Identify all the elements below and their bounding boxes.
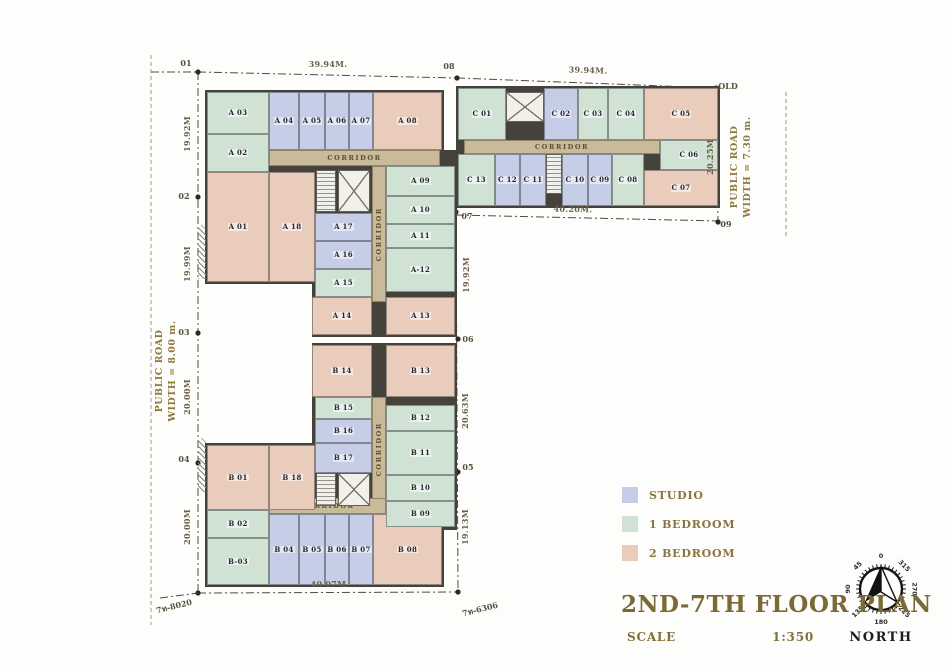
survey-point-label-p05: 05: [462, 463, 473, 471]
legend-item-bed2: 2 BEDROOM: [622, 545, 735, 561]
dimension-label-dim-left-4: 20.00M: [183, 509, 191, 545]
road-label-road-right: PUBLIC ROADWIDTH = 7.30 m.: [729, 116, 755, 217]
road-label-road-left: PUBLIC ROADWIDTH = 8.00 m.: [154, 320, 180, 421]
dimension-label-dim-mid-2: 20.63M: [461, 393, 469, 429]
road-label-line1: PUBLIC ROAD: [729, 116, 742, 217]
dimension-label-dim-top-a: 39.94M.: [309, 60, 348, 68]
survey-point-label-p06: 06: [462, 335, 473, 343]
survey-point-label-pbm: 7ท-6306: [461, 601, 498, 618]
survey-point-label-p09: 09: [720, 220, 731, 228]
dimension-label-dim-left-3: 20.00M: [183, 379, 191, 415]
floor-plan-canvas: CORRIDORCORRIDORCORRIDORCORRIDORCORRIDOR…: [0, 0, 946, 666]
legend-label: 2 BEDROOM: [649, 548, 735, 559]
dimension-label-dim-top-c: 39.94M.: [568, 65, 607, 74]
compass-degree-315: 315: [897, 559, 911, 573]
compass-degree-0: 0: [879, 553, 884, 560]
legend-swatch-bed1: [622, 516, 638, 532]
dimension-label-dim-bot-c: 40.20M.: [554, 205, 593, 214]
road-label-line2: WIDTH = 7.30 m.: [742, 116, 755, 217]
survey-point-label-p07: 07: [461, 212, 472, 220]
annotation-layer: 39.94M.39.94M.19.92M19.99M20.00M20.00M19…: [0, 0, 946, 666]
scale-value: 1:350: [772, 631, 814, 643]
title-block: 2ND-7TH FLOOR PLAN SCALE 1:350: [621, 592, 821, 643]
dimension-label-dim-left-1: 19.92M: [183, 116, 191, 152]
survey-point-label-p08: 08: [443, 62, 454, 70]
survey-point-label-p01: 01: [180, 59, 191, 67]
survey-point-label-p04: 04: [178, 455, 189, 463]
compass-degree-45: 45: [852, 560, 863, 571]
legend-item-studio: STUDIO: [622, 487, 735, 503]
compass-degree-180: 180: [874, 619, 888, 626]
survey-point-label-p02: 02: [178, 192, 189, 200]
legend-label: STUDIO: [649, 490, 704, 501]
dimension-label-dim-bot-b: 40.07M.: [311, 580, 350, 588]
road-label-line2: WIDTH = 8.00 m.: [167, 320, 180, 421]
legend-swatch-studio: [622, 487, 638, 503]
dimension-label-dim-left-2: 19.99M: [183, 246, 191, 282]
north-compass-label: NORTH: [849, 631, 912, 644]
legend-swatch-bed2: [622, 545, 638, 561]
dimension-label-dim-mid-3: 19.13M: [461, 509, 469, 545]
scale-label: SCALE: [627, 631, 676, 643]
dimension-label-dim-right-c: 20.25M: [706, 139, 714, 175]
legend-item-bed1: 1 BEDROOM: [622, 516, 735, 532]
legend-label: 1 BEDROOM: [649, 519, 735, 530]
survey-point-label-pold: OLD: [718, 82, 738, 90]
scale-row: SCALE 1:350: [627, 631, 814, 643]
page-title: 2ND-7TH FLOOR PLAN: [621, 592, 821, 617]
legend: STUDIO1 BEDROOM2 BEDROOM: [622, 487, 735, 561]
road-label-line1: PUBLIC ROAD: [154, 320, 167, 421]
dimension-label-dim-mid-1: 19.92M: [462, 257, 470, 293]
survey-point-label-p03: 03: [178, 328, 189, 336]
survey-point-label-pbl: 7ท-8020: [155, 598, 192, 615]
